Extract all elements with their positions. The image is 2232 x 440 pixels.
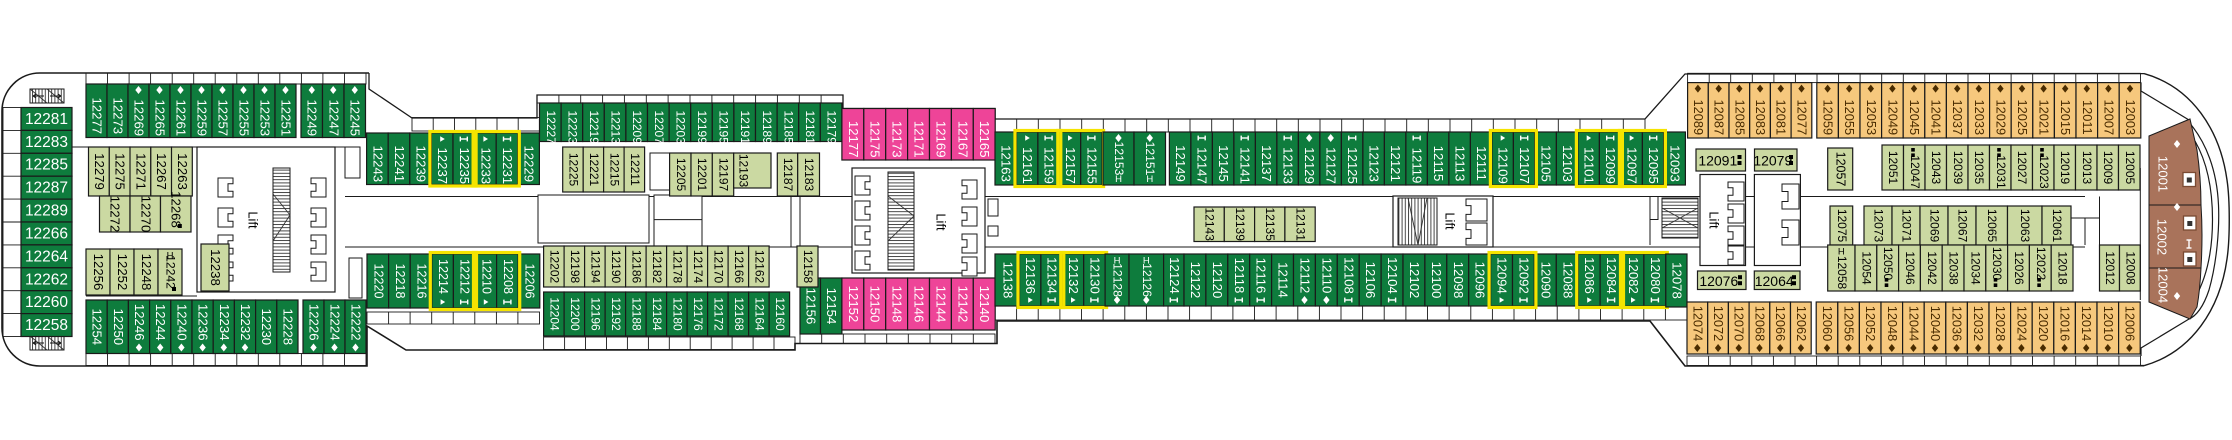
svg-text:12168: 12168 bbox=[732, 297, 746, 331]
svg-text:12171: 12171 bbox=[912, 121, 927, 158]
svg-text:12138: 12138 bbox=[1000, 262, 1015, 299]
svg-text:12060: 12060 bbox=[1820, 306, 1835, 342]
svg-text:12194: 12194 bbox=[588, 250, 602, 284]
svg-text:12082: 12082 bbox=[1626, 257, 1641, 294]
svg-text:12166: 12166 bbox=[732, 250, 746, 284]
svg-text:12131: 12131 bbox=[1294, 208, 1308, 242]
svg-text:12173: 12173 bbox=[890, 121, 905, 158]
svg-text:12259: 12259 bbox=[195, 99, 210, 136]
svg-text:12033: 12033 bbox=[1972, 100, 1987, 136]
svg-text:12083: 12083 bbox=[1753, 100, 1768, 136]
svg-text:12120: 12120 bbox=[1210, 262, 1225, 299]
svg-text:12188: 12188 bbox=[629, 297, 643, 331]
svg-text:12114: 12114 bbox=[1276, 262, 1291, 298]
svg-text:12212: 12212 bbox=[458, 259, 472, 294]
svg-text:12235: 12235 bbox=[457, 147, 472, 184]
svg-text:12097: 12097 bbox=[1625, 147, 1640, 184]
svg-text:12137: 12137 bbox=[1259, 145, 1274, 182]
svg-text:12103: 12103 bbox=[1560, 145, 1575, 182]
svg-text:12199: 12199 bbox=[695, 111, 709, 145]
svg-text:12080: 12080 bbox=[1648, 257, 1663, 294]
svg-text:12140: 12140 bbox=[977, 286, 992, 323]
svg-text:12281: 12281 bbox=[25, 111, 68, 128]
svg-text:12246: 12246 bbox=[132, 304, 147, 341]
svg-text:H: H bbox=[1146, 174, 1153, 185]
svg-text:12231: 12231 bbox=[500, 147, 515, 184]
svg-text:12202: 12202 bbox=[547, 250, 561, 284]
svg-text:12031: 12031 bbox=[1994, 155, 2008, 189]
svg-text:12206: 12206 bbox=[523, 263, 537, 298]
svg-text:12225: 12225 bbox=[566, 153, 580, 187]
svg-text:12216: 12216 bbox=[415, 263, 429, 298]
svg-text:12182: 12182 bbox=[650, 250, 664, 284]
svg-text:12056: 12056 bbox=[1842, 306, 1857, 342]
svg-text:12269: 12269 bbox=[132, 99, 147, 136]
svg-text:12102: 12102 bbox=[1407, 262, 1422, 299]
svg-text:12133: 12133 bbox=[1281, 147, 1296, 184]
svg-text:12036: 12036 bbox=[1950, 306, 1965, 342]
svg-text:12185: 12185 bbox=[781, 111, 795, 145]
svg-text:12044: 12044 bbox=[1906, 306, 1921, 342]
svg-text:12064: 12064 bbox=[1755, 273, 1794, 289]
svg-text:12004: 12004 bbox=[2156, 267, 2171, 303]
svg-text:12045: 12045 bbox=[1907, 100, 1922, 136]
svg-text:12178: 12178 bbox=[670, 250, 684, 284]
svg-text:12051: 12051 bbox=[1886, 151, 1900, 185]
svg-text:12038: 12038 bbox=[1947, 251, 1961, 285]
svg-text:12011: 12011 bbox=[2080, 100, 2095, 135]
svg-text:12002: 12002 bbox=[2155, 219, 2170, 255]
svg-text:12266: 12266 bbox=[25, 226, 68, 243]
svg-text:12201: 12201 bbox=[695, 158, 709, 192]
svg-text:12019: 12019 bbox=[2058, 151, 2072, 185]
svg-text:12107: 12107 bbox=[1517, 147, 1532, 184]
svg-text:12104: 12104 bbox=[1385, 257, 1400, 294]
svg-text:12196: 12196 bbox=[588, 297, 602, 331]
svg-text:12063: 12063 bbox=[2018, 209, 2032, 243]
svg-text:12106: 12106 bbox=[1363, 262, 1378, 299]
svg-text:12116: 12116 bbox=[1254, 258, 1269, 294]
svg-text:12119: 12119 bbox=[1410, 148, 1425, 184]
svg-text:12190: 12190 bbox=[609, 250, 623, 284]
svg-text:12079: 12079 bbox=[1753, 153, 1792, 169]
svg-text:12148: 12148 bbox=[890, 286, 905, 323]
svg-text:12101: 12101 bbox=[1582, 147, 1597, 184]
svg-text:12180: 12180 bbox=[670, 297, 684, 331]
svg-text:12260: 12260 bbox=[25, 294, 68, 311]
svg-text:12012: 12012 bbox=[2103, 251, 2117, 285]
svg-text:12205: 12205 bbox=[674, 158, 688, 192]
svg-text:12053: 12053 bbox=[1864, 100, 1879, 136]
svg-text:12039: 12039 bbox=[1951, 151, 1965, 185]
svg-text:12213: 12213 bbox=[609, 111, 623, 145]
svg-text:12089: 12089 bbox=[1691, 100, 1706, 136]
svg-text:12088: 12088 bbox=[1560, 262, 1575, 299]
svg-text:12099: 12099 bbox=[1603, 147, 1618, 184]
svg-text:H: H bbox=[1143, 256, 1150, 267]
svg-text:Lift: Lift bbox=[1443, 212, 1458, 230]
svg-text:12247: 12247 bbox=[326, 99, 341, 136]
svg-text:12132: 12132 bbox=[1066, 257, 1081, 294]
svg-text:12227: 12227 bbox=[544, 111, 558, 145]
svg-text:12115: 12115 bbox=[1431, 146, 1446, 182]
svg-text:12049: 12049 bbox=[1885, 100, 1900, 136]
svg-text:12252: 12252 bbox=[115, 254, 130, 291]
svg-text:12142: 12142 bbox=[955, 286, 970, 323]
svg-text:12105: 12105 bbox=[1539, 145, 1554, 182]
svg-text:12174: 12174 bbox=[691, 250, 705, 284]
svg-text:12026: 12026 bbox=[2012, 251, 2026, 285]
svg-text:12124: 12124 bbox=[1167, 257, 1182, 294]
svg-text:12009: 12009 bbox=[2101, 151, 2115, 185]
svg-text:12273: 12273 bbox=[111, 97, 126, 134]
svg-text:12251: 12251 bbox=[279, 99, 294, 136]
svg-text:12139: 12139 bbox=[1233, 208, 1247, 242]
svg-text:12215: 12215 bbox=[607, 153, 621, 187]
svg-text:12034: 12034 bbox=[1968, 251, 1982, 285]
svg-text:12263: 12263 bbox=[175, 153, 190, 190]
svg-text:12198: 12198 bbox=[568, 250, 582, 284]
svg-text:12232: 12232 bbox=[238, 304, 253, 341]
svg-text:12086: 12086 bbox=[1582, 257, 1597, 294]
svg-text:12108: 12108 bbox=[1341, 257, 1356, 294]
svg-text:12014: 12014 bbox=[2079, 306, 2094, 342]
svg-text:12015: 12015 bbox=[2058, 100, 2073, 136]
svg-text:12023: 12023 bbox=[2037, 155, 2051, 189]
svg-text:12262: 12262 bbox=[25, 271, 68, 288]
svg-text:12237: 12237 bbox=[435, 147, 450, 184]
svg-text:12279: 12279 bbox=[92, 153, 107, 190]
svg-text:12159: 12159 bbox=[1042, 147, 1057, 184]
svg-text:12218: 12218 bbox=[393, 263, 407, 298]
svg-text:12155: 12155 bbox=[1084, 147, 1099, 184]
svg-text:12129: 12129 bbox=[1302, 147, 1317, 184]
svg-text:12125: 12125 bbox=[1345, 147, 1360, 184]
svg-text:12209: 12209 bbox=[630, 111, 644, 145]
svg-text:12092: 12092 bbox=[1517, 257, 1532, 294]
svg-text:12020: 12020 bbox=[2036, 306, 2051, 342]
svg-text:12151: 12151 bbox=[1143, 142, 1157, 176]
svg-text:12253: 12253 bbox=[258, 99, 273, 136]
svg-text:12093: 12093 bbox=[1668, 145, 1683, 182]
svg-text:12144: 12144 bbox=[933, 286, 948, 323]
svg-text:12078: 12078 bbox=[1669, 262, 1684, 299]
svg-text:12158: 12158 bbox=[801, 250, 815, 284]
svg-text:12098: 12098 bbox=[1451, 262, 1466, 299]
svg-text:12176: 12176 bbox=[691, 297, 705, 331]
svg-text:12122: 12122 bbox=[1188, 262, 1203, 299]
svg-text:12160: 12160 bbox=[773, 297, 787, 331]
svg-text:12277: 12277 bbox=[90, 97, 105, 134]
svg-text:12162: 12162 bbox=[752, 250, 766, 284]
svg-text:12076: 12076 bbox=[1699, 273, 1738, 289]
svg-text:12210: 12210 bbox=[479, 259, 493, 294]
svg-text:12048: 12048 bbox=[1885, 306, 1900, 342]
svg-text:12189: 12189 bbox=[760, 111, 774, 145]
svg-text:12041: 12041 bbox=[1929, 100, 1944, 136]
svg-text:12270: 12270 bbox=[138, 196, 153, 233]
svg-text:12123: 12123 bbox=[1367, 145, 1382, 182]
svg-text:12153: 12153 bbox=[1112, 142, 1126, 176]
svg-text:12175: 12175 bbox=[868, 121, 883, 158]
svg-text:12073: 12073 bbox=[1872, 209, 1886, 243]
svg-text:12256: 12256 bbox=[91, 254, 106, 291]
svg-text:12154: 12154 bbox=[824, 288, 839, 325]
svg-text:12001: 12001 bbox=[2156, 156, 2171, 192]
svg-text:12134: 12134 bbox=[1045, 257, 1060, 294]
svg-text:12272: 12272 bbox=[108, 196, 123, 233]
svg-text:12200: 12200 bbox=[568, 297, 582, 331]
svg-text:12028: 12028 bbox=[1993, 306, 2008, 342]
svg-text:12236: 12236 bbox=[196, 304, 211, 341]
svg-text:12087: 12087 bbox=[1712, 100, 1727, 136]
svg-text:12016: 12016 bbox=[2058, 306, 2073, 342]
svg-text:12243: 12243 bbox=[370, 145, 385, 182]
svg-text:12065: 12065 bbox=[1985, 209, 1999, 243]
svg-text:12195: 12195 bbox=[717, 111, 731, 145]
svg-text:12029: 12029 bbox=[1993, 100, 2008, 136]
svg-text:12172: 12172 bbox=[711, 297, 725, 331]
svg-text:12264: 12264 bbox=[25, 248, 68, 265]
svg-text:12221: 12221 bbox=[587, 153, 601, 187]
svg-text:12067: 12067 bbox=[1956, 209, 1970, 243]
svg-text:12062: 12062 bbox=[1794, 306, 1809, 342]
svg-text:12054: 12054 bbox=[1859, 251, 1873, 285]
svg-text:H: H bbox=[1838, 247, 1845, 258]
svg-text:12141: 12141 bbox=[1238, 147, 1253, 184]
svg-text:12030: 12030 bbox=[1990, 247, 2004, 281]
svg-text:H: H bbox=[1114, 256, 1121, 267]
svg-text:12025: 12025 bbox=[2015, 100, 2030, 136]
svg-text:12042: 12042 bbox=[1925, 251, 1939, 285]
svg-text:12283: 12283 bbox=[25, 134, 68, 151]
svg-text:12234: 12234 bbox=[217, 304, 232, 341]
svg-text:12135: 12135 bbox=[1263, 208, 1277, 242]
svg-text:12223: 12223 bbox=[565, 111, 579, 145]
svg-text:12118: 12118 bbox=[1232, 258, 1247, 294]
svg-text:12010: 12010 bbox=[2101, 306, 2116, 342]
svg-text:12170: 12170 bbox=[711, 250, 725, 284]
svg-text:12146: 12146 bbox=[912, 286, 927, 323]
svg-text:12169: 12169 bbox=[933, 121, 948, 158]
svg-text:12156: 12156 bbox=[803, 288, 818, 325]
svg-text:12226: 12226 bbox=[307, 304, 322, 341]
svg-text:12022: 12022 bbox=[2034, 247, 2048, 281]
svg-text:12043: 12043 bbox=[1929, 151, 1943, 185]
svg-text:12006: 12006 bbox=[2122, 306, 2137, 342]
svg-text:12165: 12165 bbox=[977, 121, 992, 158]
svg-text:12037: 12037 bbox=[1950, 100, 1965, 136]
svg-text:12181: 12181 bbox=[803, 111, 817, 145]
svg-text:12289: 12289 bbox=[25, 203, 68, 220]
svg-text:12239: 12239 bbox=[414, 145, 429, 182]
svg-text:12233: 12233 bbox=[478, 147, 493, 184]
svg-text:12005: 12005 bbox=[2123, 151, 2137, 185]
svg-text:12192: 12192 bbox=[609, 297, 623, 331]
svg-text:12240: 12240 bbox=[174, 304, 189, 341]
svg-text:12257: 12257 bbox=[216, 99, 231, 136]
svg-text:12238: 12238 bbox=[208, 249, 223, 286]
svg-text:12121: 12121 bbox=[1388, 145, 1403, 182]
svg-text:12207: 12207 bbox=[652, 111, 666, 145]
svg-text:12183: 12183 bbox=[802, 158, 816, 192]
svg-text:12197: 12197 bbox=[717, 158, 731, 192]
svg-text:12100: 12100 bbox=[1429, 262, 1444, 299]
svg-text:12161: 12161 bbox=[1020, 147, 1035, 184]
svg-text:12184: 12184 bbox=[650, 297, 664, 331]
svg-text:12219: 12219 bbox=[587, 111, 601, 145]
svg-text:12254: 12254 bbox=[90, 308, 105, 345]
svg-text:12111: 12111 bbox=[1474, 146, 1489, 181]
svg-text:12040: 12040 bbox=[1928, 306, 1943, 342]
svg-text:12035: 12035 bbox=[1972, 151, 1986, 185]
svg-text:12261: 12261 bbox=[174, 99, 189, 136]
svg-text:12072: 12072 bbox=[1711, 306, 1726, 342]
svg-text:H: H bbox=[167, 251, 174, 262]
svg-text:Lift: Lift bbox=[1707, 211, 1722, 229]
svg-text:12090: 12090 bbox=[1538, 262, 1553, 299]
svg-text:12050: 12050 bbox=[1881, 247, 1895, 281]
svg-text:12113: 12113 bbox=[1453, 146, 1468, 182]
svg-text:Lift: Lift bbox=[246, 211, 261, 229]
svg-text:12228: 12228 bbox=[280, 308, 295, 345]
svg-text:12186: 12186 bbox=[629, 250, 643, 284]
svg-text:12070: 12070 bbox=[1732, 306, 1747, 342]
svg-text:12127: 12127 bbox=[1324, 147, 1339, 184]
svg-text:12057: 12057 bbox=[1834, 152, 1848, 187]
svg-text:H: H bbox=[1115, 174, 1122, 185]
svg-text:12095: 12095 bbox=[1646, 147, 1661, 184]
svg-text:12248: 12248 bbox=[139, 254, 154, 291]
svg-text:12052: 12052 bbox=[1863, 306, 1878, 342]
svg-text:12224: 12224 bbox=[328, 304, 343, 341]
svg-text:12275: 12275 bbox=[113, 153, 128, 190]
svg-text:12126: 12126 bbox=[1140, 263, 1154, 297]
svg-text:12143: 12143 bbox=[1203, 208, 1217, 242]
svg-text:12222: 12222 bbox=[349, 304, 364, 341]
svg-text:12112: 12112 bbox=[1298, 258, 1313, 294]
svg-text:12021: 12021 bbox=[2037, 100, 2052, 136]
svg-text:12147: 12147 bbox=[1195, 147, 1210, 184]
svg-text:12075: 12075 bbox=[1835, 209, 1849, 243]
svg-text:12110: 12110 bbox=[1319, 258, 1334, 294]
svg-text:12008: 12008 bbox=[2123, 251, 2137, 285]
svg-text:12136: 12136 bbox=[1023, 257, 1038, 294]
svg-text:12081: 12081 bbox=[1774, 100, 1789, 136]
svg-text:12245: 12245 bbox=[348, 99, 363, 136]
svg-text:12229: 12229 bbox=[522, 145, 537, 182]
svg-text:12061: 12061 bbox=[2050, 209, 2064, 243]
svg-text:12268: 12268 bbox=[169, 191, 184, 228]
svg-text:12204: 12204 bbox=[547, 297, 561, 331]
svg-text:12084: 12084 bbox=[1604, 257, 1619, 294]
svg-text:12193: 12193 bbox=[737, 154, 751, 188]
svg-text:12244: 12244 bbox=[153, 304, 168, 341]
svg-text:12128: 12128 bbox=[1111, 263, 1125, 297]
svg-text:12130: 12130 bbox=[1087, 257, 1102, 294]
svg-text:12066: 12066 bbox=[1773, 306, 1788, 342]
svg-text:12211: 12211 bbox=[628, 153, 642, 186]
svg-text:12179: 12179 bbox=[825, 111, 839, 145]
svg-text:12074: 12074 bbox=[1690, 306, 1705, 342]
svg-text:12285: 12285 bbox=[25, 157, 68, 174]
svg-text:12007: 12007 bbox=[2101, 100, 2116, 136]
svg-text:12249: 12249 bbox=[305, 99, 320, 136]
svg-text:12024: 12024 bbox=[2014, 306, 2029, 342]
svg-text:12027: 12027 bbox=[2015, 151, 2029, 185]
svg-text:12214: 12214 bbox=[436, 259, 450, 294]
svg-text:12230: 12230 bbox=[259, 308, 274, 345]
svg-text:12177: 12177 bbox=[846, 121, 861, 158]
svg-text:12267: 12267 bbox=[154, 153, 169, 190]
svg-text:12152: 12152 bbox=[846, 286, 861, 323]
svg-text:12241: 12241 bbox=[392, 145, 407, 182]
svg-text:12164: 12164 bbox=[752, 297, 766, 331]
svg-text:12287: 12287 bbox=[25, 180, 68, 197]
svg-text:12271: 12271 bbox=[133, 153, 148, 190]
svg-text:12109: 12109 bbox=[1496, 147, 1511, 184]
svg-text:12258: 12258 bbox=[25, 317, 68, 334]
svg-text:12018: 12018 bbox=[2056, 251, 2070, 285]
svg-text:12068: 12068 bbox=[1753, 306, 1768, 342]
svg-text:12046: 12046 bbox=[1903, 251, 1917, 285]
svg-text:12187: 12187 bbox=[781, 158, 795, 192]
svg-text:12077: 12077 bbox=[1795, 100, 1810, 136]
svg-text:12167: 12167 bbox=[955, 121, 970, 158]
svg-text:12208: 12208 bbox=[501, 259, 515, 294]
svg-text:12085: 12085 bbox=[1732, 100, 1747, 136]
svg-text:12059: 12059 bbox=[1821, 100, 1836, 136]
svg-text:12058: 12058 bbox=[1835, 256, 1849, 290]
svg-text:12265: 12265 bbox=[153, 99, 168, 136]
svg-text:12145: 12145 bbox=[1216, 145, 1231, 182]
svg-text:12055: 12055 bbox=[1842, 100, 1857, 136]
svg-text:12150: 12150 bbox=[868, 286, 883, 323]
svg-text:12191: 12191 bbox=[738, 111, 752, 145]
svg-text:12255: 12255 bbox=[237, 99, 252, 136]
svg-text:12220: 12220 bbox=[371, 263, 385, 298]
svg-text:12094: 12094 bbox=[1495, 257, 1510, 294]
svg-text:Lift: Lift bbox=[934, 213, 949, 231]
svg-text:12096: 12096 bbox=[1473, 262, 1488, 299]
svg-text:12250: 12250 bbox=[111, 308, 126, 345]
svg-text:12032: 12032 bbox=[1971, 306, 1986, 342]
svg-text:12071: 12071 bbox=[1900, 209, 1914, 243]
svg-text:12163: 12163 bbox=[999, 145, 1014, 182]
svg-text:12203: 12203 bbox=[673, 111, 687, 145]
svg-text:12149: 12149 bbox=[1173, 145, 1188, 182]
svg-text:12157: 12157 bbox=[1063, 147, 1078, 184]
svg-text:12047: 12047 bbox=[1908, 155, 1922, 189]
svg-text:12091: 12091 bbox=[1698, 153, 1737, 169]
svg-text:12003: 12003 bbox=[2123, 100, 2138, 136]
svg-text:12069: 12069 bbox=[1928, 209, 1942, 243]
svg-text:12013: 12013 bbox=[2080, 151, 2094, 185]
